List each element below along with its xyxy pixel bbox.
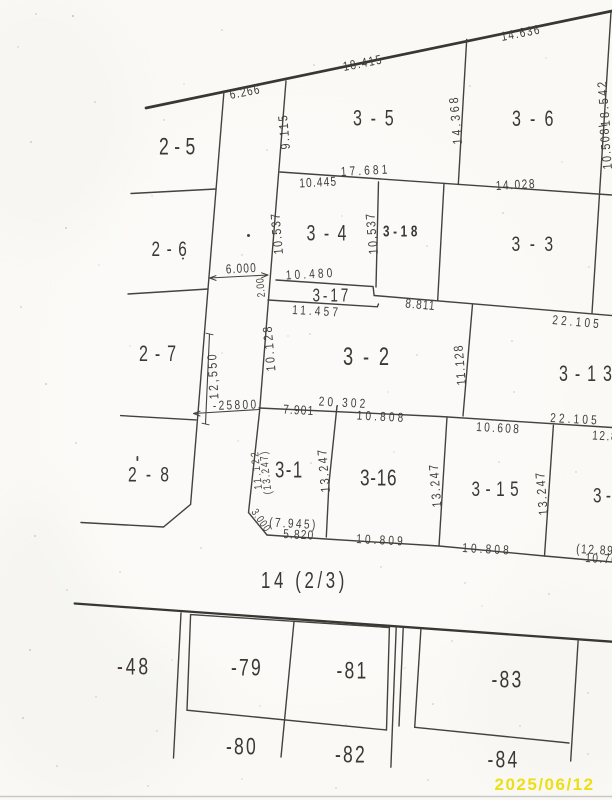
svg-text:-79: -79 [231, 655, 263, 681]
svg-text:22.105: 22.105 [550, 411, 600, 428]
svg-text:-25800: -25800 [213, 397, 259, 413]
svg-text:9.115: 9.115 [275, 113, 293, 150]
svg-text:2-5: 2-5 [159, 134, 201, 160]
svg-text:12,550: 12,550 [204, 352, 222, 400]
svg-text:3-16: 3-16 [360, 465, 397, 491]
svg-text:2-7: 2-7 [139, 343, 183, 367]
svg-text:3-5: 3-5 [353, 107, 402, 131]
svg-text:-82: -82 [335, 742, 367, 768]
svg-text:10.809: 10.809 [356, 532, 406, 549]
svg-text:-48: -48 [117, 654, 151, 680]
svg-text:-83: -83 [492, 667, 524, 693]
svg-text:7.901: 7.901 [283, 402, 315, 418]
svg-text:3-17: 3-17 [313, 286, 352, 307]
svg-text:10.76: 10.76 [585, 551, 612, 567]
svg-text:14 (2/3): 14 (2/3) [261, 569, 348, 594]
svg-text:12.8: 12.8 [592, 428, 612, 444]
svg-text:6.000: 6.000 [225, 261, 257, 277]
svg-text:8.811: 8.811 [405, 296, 437, 313]
svg-text:11.457: 11.457 [292, 303, 342, 320]
svg-text:5.820: 5.820 [283, 527, 315, 543]
svg-text:10.808: 10.808 [356, 408, 406, 425]
svg-text:-84: -84 [488, 747, 520, 773]
svg-text:2.00: 2.00 [254, 277, 268, 298]
svg-text:3-13: 3-13 [559, 363, 612, 387]
svg-text:3-3: 3-3 [512, 232, 563, 256]
svg-text:3-14: 3-14 [593, 483, 612, 507]
svg-text:10.508: 10.508 [596, 126, 612, 170]
svg-text:-81: -81 [337, 658, 369, 684]
svg-text:3-1: 3-1 [275, 458, 304, 483]
svg-text:10.445: 10.445 [299, 174, 338, 190]
svg-text:10.480: 10.480 [285, 266, 335, 283]
svg-text:3-4: 3-4 [307, 222, 355, 246]
svg-text:14.028: 14.028 [495, 177, 536, 194]
svg-text:3-2: 3-2 [343, 342, 399, 371]
svg-text:18.542: 18.542 [594, 79, 612, 127]
svg-text:2-6: 2-6 [152, 237, 194, 261]
svg-text:-80: -80 [226, 734, 258, 760]
svg-text:3-18: 3-18 [383, 222, 421, 240]
svg-text:3-6: 3-6 [512, 108, 563, 132]
svg-text:2025/06/12: 2025/06/12 [495, 775, 595, 794]
svg-text:2-8: 2-8 [128, 462, 178, 486]
svg-text:3-15: 3-15 [472, 477, 525, 501]
svg-text:10.608: 10.608 [476, 420, 522, 437]
svg-text:17.681: 17.681 [340, 162, 390, 179]
svg-text:10.808: 10.808 [462, 541, 512, 558]
